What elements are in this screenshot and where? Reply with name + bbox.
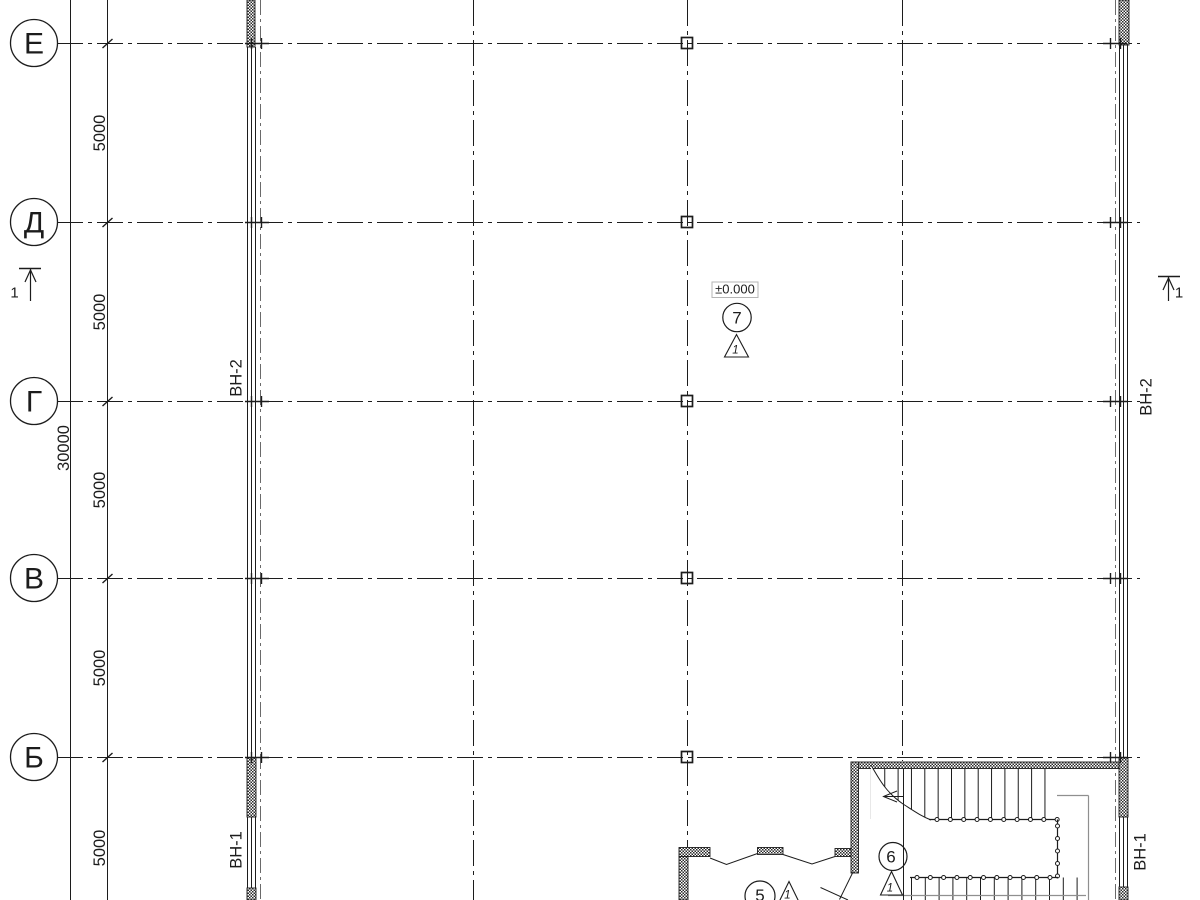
handrail-post-dot [968, 876, 972, 880]
wall-right-hatched-bottom [1119, 887, 1128, 900]
handrail-post-dot [1035, 876, 1039, 880]
handrail-post-dot [1002, 818, 1006, 822]
vestibule-wall-left-stub [679, 848, 710, 857]
node-number-stair: 6 [886, 848, 895, 867]
section-mark-right: 1 [1158, 277, 1183, 302]
handrail-post-dot [955, 876, 959, 880]
handrail-post-dot [962, 818, 966, 822]
handrail-post-dot [915, 876, 919, 880]
wall-tags: ВН-2 ВН-2 ВН-1 ВН-1 [228, 359, 1156, 871]
stair-handrail [888, 796, 1089, 900]
dim-total: 30000 [55, 425, 73, 471]
dim-bay-1: 5000 [91, 115, 109, 152]
dim-bay-5: 5000 [91, 830, 109, 867]
vestibule-opening-left [710, 854, 758, 865]
dim-bay-3: 5000 [91, 472, 109, 509]
handrail-post-dot [988, 818, 992, 822]
grid-horizontal [57, 44, 1140, 758]
stair-door-leaf-a [840, 872, 854, 900]
stair-block [821, 762, 1120, 900]
handrail-post-dot [982, 876, 986, 880]
handrail-post-dot [995, 876, 999, 880]
axis-label-b: Б [24, 742, 44, 775]
handrail-post-dot [1042, 818, 1046, 822]
handrail-post-dot [1056, 862, 1060, 866]
level-marker-value: ±0.000 [715, 282, 755, 297]
axis-label-e: Е [24, 28, 44, 61]
dim-bay-4: 5000 [91, 650, 109, 687]
dim-bay-2: 5000 [91, 294, 109, 331]
vestibule [679, 848, 851, 900]
handrail-post-dot [1048, 876, 1052, 880]
stair-break-mask [871, 765, 931, 820]
vestibule-wall-mid-stub [758, 848, 784, 855]
stair-treads-lower [912, 878, 1078, 900]
axis-label-d: Д [24, 207, 44, 240]
handrail-post-dot [1008, 876, 1012, 880]
detail-number-hall: 1 [732, 345, 738, 357]
wall-tag-left-lower: ВН-1 [228, 831, 246, 869]
node-number-hall: 7 [732, 309, 741, 328]
wall-left [247, 0, 256, 900]
handrail-post-dot [1015, 818, 1019, 822]
dimension-texts: 5000 5000 5000 5000 5000 30000 [55, 115, 109, 867]
handrail-post-dot [935, 818, 939, 822]
handrail-post-dot [1056, 824, 1060, 828]
handrail-post-dot [1028, 818, 1032, 822]
wall-tag-right-upper: ВН-2 [1138, 378, 1156, 416]
handrail-post-dot [942, 876, 946, 880]
wall-tag-left-upper: ВН-2 [228, 359, 246, 397]
wall-right-hatched-pier [1119, 758, 1128, 817]
node-number-entry: 5 [755, 886, 764, 900]
vestibule-wall-right-stub [835, 849, 851, 857]
node-marker-hall: 7 1 [723, 303, 751, 357]
stair-left-wall [851, 762, 859, 873]
wall-left-hatched-pier [247, 758, 256, 817]
wall-right [1119, 0, 1129, 900]
section-label-right: 1 [1175, 285, 1183, 302]
node-marker-stair: 6 1 [879, 843, 907, 896]
handrail-post-dot [1021, 876, 1025, 880]
handrail-post-dot [1056, 849, 1060, 853]
axis-label-g: Г [26, 386, 42, 419]
stair-top-wall [851, 762, 1119, 769]
handrail-post-dot [928, 876, 932, 880]
floor-plan-canvas: Е Д Г В Б 5000 5000 5000 5000 5000 30000… [0, 0, 1200, 900]
axis-bubbles: Е Д Г В Б [11, 20, 58, 781]
vestibule-wall-left [679, 857, 688, 900]
handrail-post-dot [1056, 837, 1060, 841]
handrail-post-dot [975, 818, 979, 822]
stair-door-leaf-b [821, 888, 849, 900]
wall-axis-ticks [245, 38, 1127, 763]
section-label-left: 1 [10, 285, 18, 302]
wall-tag-right-lower: ВН-1 [1132, 833, 1150, 871]
level-marker: ±0.000 [712, 282, 758, 298]
detail-number-stair: 1 [887, 883, 893, 895]
node-marker-entry: 5 1 [745, 881, 800, 900]
vestibule-opening-right [783, 855, 835, 865]
section-mark-left: 1 [10, 269, 41, 302]
handrail-post-dot [948, 818, 952, 822]
axis-label-v: В [24, 563, 44, 596]
wall-left-hatched-bottom [247, 888, 256, 900]
detail-number-entry: 1 [784, 890, 790, 900]
floor-plan-drawing: Е Д Г В Б 5000 5000 5000 5000 5000 30000… [0, 0, 1200, 900]
